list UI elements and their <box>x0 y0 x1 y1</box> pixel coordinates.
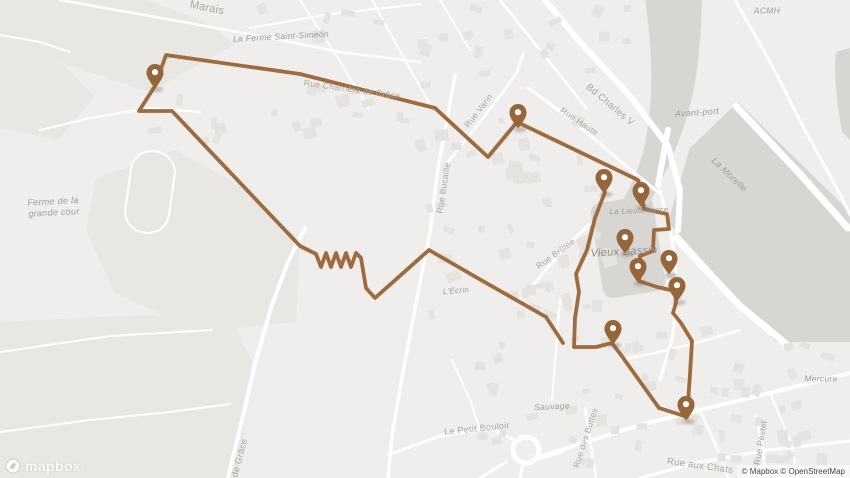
building <box>420 81 430 88</box>
building <box>499 430 506 437</box>
road <box>440 0 470 50</box>
road <box>480 462 506 478</box>
building <box>719 430 725 443</box>
roundabout <box>513 437 539 463</box>
building <box>399 118 409 124</box>
building <box>717 453 726 462</box>
building <box>797 430 811 442</box>
marker-pin-hole <box>635 263 641 269</box>
marker-pin-hole <box>666 255 672 261</box>
building <box>528 153 541 163</box>
water-area <box>668 102 850 342</box>
building <box>499 342 505 349</box>
mapbox-logo-text: mapbox <box>25 458 81 474</box>
building <box>491 437 502 446</box>
building <box>592 299 603 312</box>
building <box>700 325 714 337</box>
building <box>730 414 743 424</box>
marker-pin-hole <box>515 109 521 115</box>
map-label: Marais <box>189 0 226 17</box>
map-label: Sauvage <box>534 400 570 412</box>
mapbox-logo[interactable]: mapbox <box>5 458 81 474</box>
building <box>582 389 589 395</box>
marker-pin-hole <box>610 325 616 331</box>
marker-pin-hole <box>601 174 607 180</box>
mapbox-logo-icon <box>5 458 21 474</box>
building <box>526 241 535 249</box>
building <box>414 138 428 153</box>
building <box>176 93 183 106</box>
building <box>498 248 511 261</box>
building <box>517 311 525 319</box>
building <box>820 351 835 361</box>
building <box>498 117 505 124</box>
map-render: MaraisLa Ferme Saint-SimeonRue Charrière… <box>0 0 850 478</box>
map-label: Rue Haute <box>559 105 601 138</box>
building <box>790 400 803 411</box>
building <box>622 38 631 44</box>
building <box>292 120 303 132</box>
building <box>641 373 649 383</box>
building <box>585 67 596 73</box>
building <box>799 341 811 350</box>
building <box>445 270 461 284</box>
building <box>506 223 515 234</box>
map-label: Rue Brûlée <box>534 236 577 271</box>
marker-pin-hole <box>622 234 628 240</box>
building <box>611 426 620 435</box>
marker-shadow <box>634 281 647 286</box>
building <box>548 17 562 27</box>
building <box>352 111 363 118</box>
building <box>765 455 778 463</box>
marker-shadow <box>600 192 613 197</box>
map-label: grande cour <box>28 206 80 219</box>
marker-shadow <box>151 87 164 92</box>
map-attribution[interactable]: © Mapbox © OpenStreetMap <box>737 465 850 478</box>
building <box>674 375 687 384</box>
marker-shadow <box>514 127 527 132</box>
building <box>492 352 504 365</box>
building <box>786 367 798 380</box>
building <box>614 393 623 400</box>
field-area <box>0 314 252 478</box>
marker-pin-icon <box>596 169 613 194</box>
building <box>479 69 492 77</box>
building <box>513 175 524 185</box>
building <box>721 387 729 397</box>
building <box>710 386 719 394</box>
building <box>779 405 787 415</box>
marker-shadow <box>609 343 622 348</box>
map-label: Avant-port <box>673 106 719 119</box>
building <box>469 3 483 14</box>
road <box>250 4 420 28</box>
building <box>599 32 610 42</box>
map-marker[interactable] <box>669 277 686 305</box>
map-label: ACMH <box>753 5 781 15</box>
marker-shadow <box>621 252 634 257</box>
building <box>545 41 555 51</box>
building <box>477 432 488 441</box>
building <box>732 361 745 374</box>
building <box>473 46 483 59</box>
building <box>478 226 484 233</box>
map-label: Mercure <box>804 373 837 383</box>
building <box>434 129 449 141</box>
building <box>518 137 531 151</box>
building <box>636 423 647 430</box>
road <box>520 464 523 478</box>
building <box>582 303 591 310</box>
building <box>148 127 162 135</box>
marker-pin-hole <box>152 69 158 75</box>
building <box>466 149 477 157</box>
building <box>442 225 455 235</box>
building <box>450 142 461 151</box>
building <box>741 388 749 398</box>
map-canvas[interactable]: MaraisLa Ferme Saint-SimeonRue Charrière… <box>0 0 850 478</box>
map-label: L'Ecrin <box>442 285 469 296</box>
water-area <box>835 48 850 140</box>
marker-pin-hole <box>674 282 680 288</box>
building <box>635 440 643 452</box>
building <box>584 185 598 192</box>
map-marker[interactable] <box>596 169 613 197</box>
building <box>271 109 278 117</box>
marker-shadow <box>673 300 686 305</box>
building <box>322 12 331 24</box>
marker-pin-icon <box>669 277 686 302</box>
building <box>475 362 485 370</box>
field-area <box>86 150 300 332</box>
marker-pin-hole <box>638 187 644 193</box>
map-label: Bd Charles V <box>584 82 637 129</box>
building <box>438 33 448 42</box>
building <box>568 436 577 444</box>
building <box>335 93 352 109</box>
road <box>452 360 480 430</box>
marker-shadow <box>682 419 695 424</box>
building <box>303 127 317 140</box>
building <box>623 5 631 12</box>
building <box>656 331 667 339</box>
building <box>310 117 323 127</box>
building <box>256 2 269 15</box>
building <box>526 412 539 421</box>
building <box>525 284 537 296</box>
building <box>731 455 742 462</box>
marker-shadow <box>637 205 650 210</box>
building <box>786 451 794 460</box>
building <box>629 340 642 354</box>
building <box>341 9 356 17</box>
marker-pin-hole <box>683 401 689 407</box>
building <box>503 28 514 40</box>
building <box>428 310 435 320</box>
building <box>591 4 605 19</box>
